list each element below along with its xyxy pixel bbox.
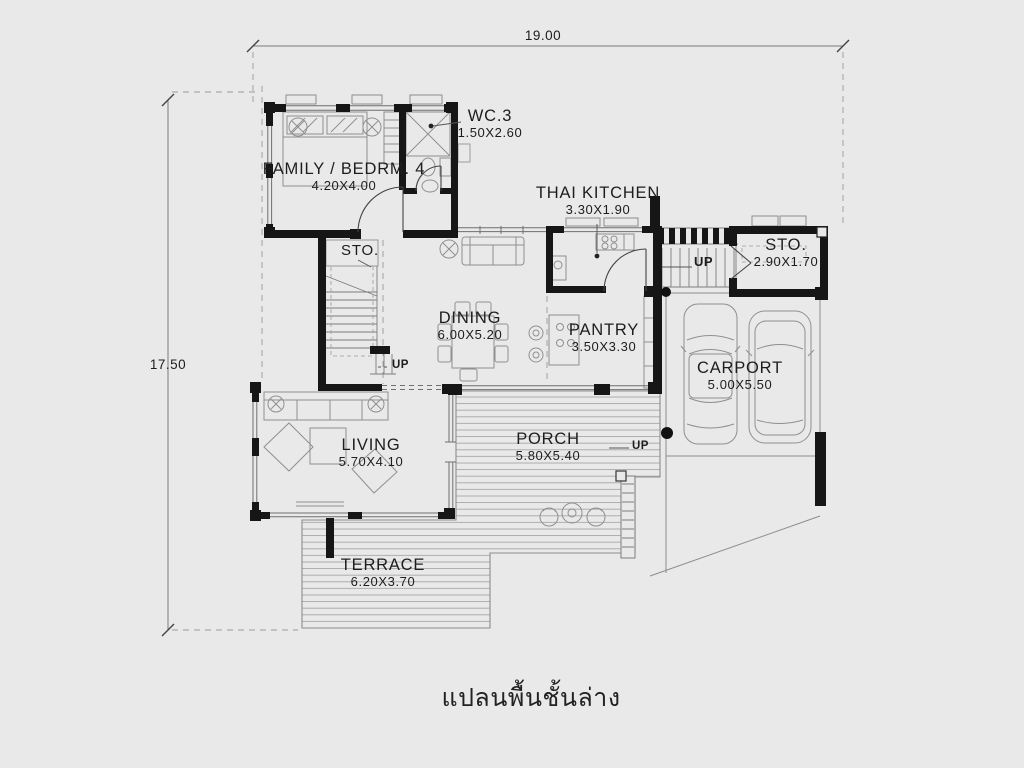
round-columns: [661, 287, 673, 439]
deck-areas: [302, 391, 660, 628]
column-marker: [817, 227, 827, 237]
trellis-hatch: [658, 228, 730, 244]
floor-plan-drawing: [0, 0, 1024, 768]
